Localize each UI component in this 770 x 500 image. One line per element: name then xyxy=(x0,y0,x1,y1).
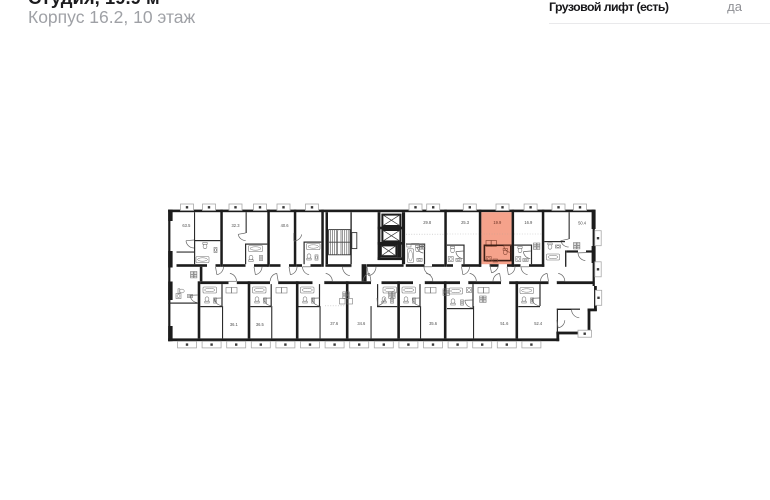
svg-text:40.6: 40.6 xyxy=(281,223,290,228)
svg-text:63.5: 63.5 xyxy=(182,223,191,228)
svg-text:37.6: 37.6 xyxy=(330,321,339,326)
svg-text:32.3: 32.3 xyxy=(232,223,241,228)
svg-text:34.6: 34.6 xyxy=(357,321,366,326)
svg-text:52.4: 52.4 xyxy=(534,321,543,326)
svg-text:16.9: 16.9 xyxy=(524,220,533,225)
svg-text:50.4: 50.4 xyxy=(578,221,587,226)
svg-text:29.8: 29.8 xyxy=(423,220,432,225)
svg-text:36.5: 36.5 xyxy=(256,322,265,327)
svg-text:35.6: 35.6 xyxy=(429,321,438,326)
svg-text:19.9: 19.9 xyxy=(493,220,502,225)
svg-text:25.3: 25.3 xyxy=(461,220,470,225)
svg-text:36.1: 36.1 xyxy=(230,322,239,327)
svg-text:51.6: 51.6 xyxy=(500,321,509,326)
